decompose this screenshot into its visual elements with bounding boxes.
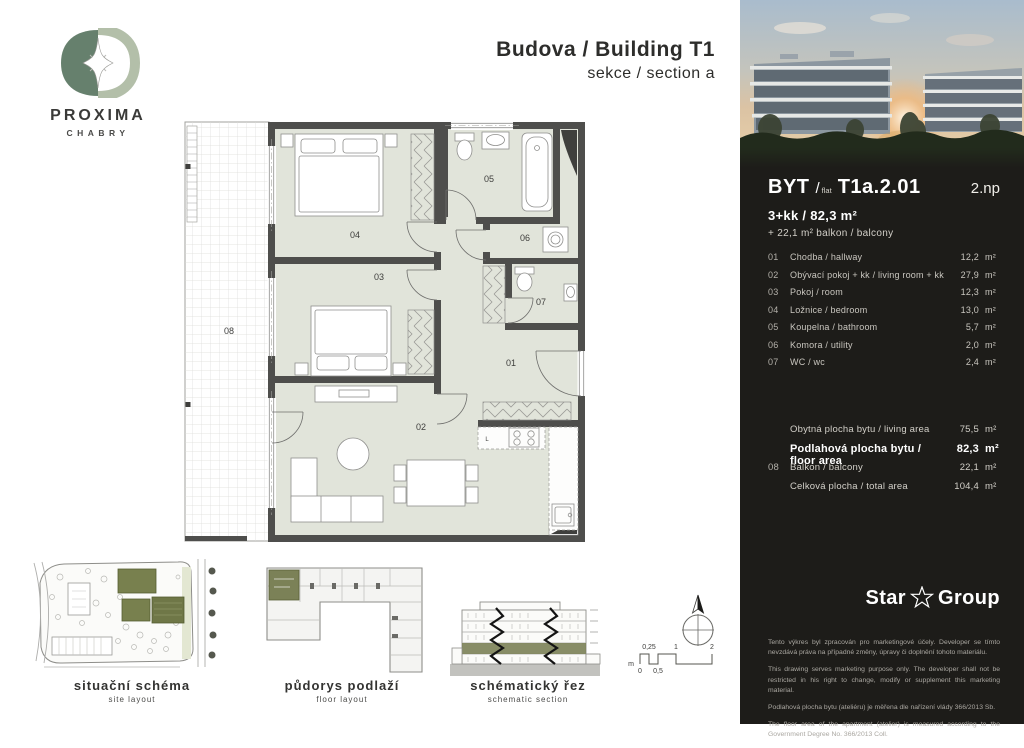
caption-floor-en: floor layout <box>262 695 422 704</box>
room-row-06-rlabel: Komora / utility <box>790 340 945 350</box>
room-row-06-runit: m² <box>985 340 1000 350</box>
room-label-08: 08 <box>224 326 234 336</box>
highlighted-floor <box>462 643 586 654</box>
room-row-04-rnum: 04 <box>768 305 790 315</box>
brand-word-star: Star <box>865 587 906 610</box>
site-layout-diagram <box>30 557 230 680</box>
caption-site-cs: situační schéma <box>32 678 232 693</box>
room-row-01-rlabel: Chodba / hallway <box>790 252 945 262</box>
flat-label: BYT <box>768 176 810 199</box>
total-row-0: Obytná plocha bytu / living area75,5m² <box>768 424 1000 443</box>
room-row-05-rnum: 05 <box>768 322 790 332</box>
scale-025: 0,25 <box>642 644 656 651</box>
room-row-07-rlabel: WC / wc <box>790 357 945 367</box>
room-label-05: 05 <box>484 174 494 184</box>
caption-floor-layout: půdorys podlaží floor layout <box>262 678 422 704</box>
building-rendering-photo <box>740 0 1024 168</box>
room-row-01: 01Chodba / hallway12,2m² <box>768 252 1000 270</box>
legal-paragraph-3: The floor area of the apartment (atelier… <box>768 720 1000 740</box>
total-row-3-runit: m² <box>985 481 1000 492</box>
room-row-01-runit: m² <box>985 252 1000 262</box>
right-building <box>923 68 1022 132</box>
flat-word: flat <box>822 186 832 195</box>
legal-paragraph-1: This drawing serves marketing purpose on… <box>768 665 1000 696</box>
total-row-3-rlabel: Celková plocha / total area <box>790 481 945 492</box>
flat-disposition: 3+kk / 82,3 m² <box>768 208 1000 223</box>
scale-unit: m <box>628 661 634 668</box>
logo-name: PROXIMA <box>40 107 156 125</box>
proxima-logo: PROXIMA CHABRY <box>40 28 156 138</box>
total-row-0-rlabel: Obytná plocha bytu / living area <box>790 424 945 435</box>
room-row-02-rarea: 27,9 <box>945 270 979 280</box>
flat-info-sidebar: BYT / flat T1a.2.01 2.np 3+kk / 82,3 m² … <box>740 0 1024 724</box>
flat-header: BYT / flat T1a.2.01 2.np 3+kk / 82,3 m² … <box>768 176 1000 239</box>
room-row-07-rnum: 07 <box>768 357 790 367</box>
total-row-1-rarea: 82,3 <box>945 443 979 455</box>
room-row-02-runit: m² <box>985 270 1000 280</box>
room-row-05-rarea: 5,7 <box>945 322 979 332</box>
section-subtitle: sekce / section a <box>496 65 715 83</box>
room-row-03-rnum: 03 <box>768 287 790 297</box>
caption-section-en: schematic section <box>448 695 608 704</box>
room-row-05: 05Koupelna / bathroom5,7m² <box>768 322 1000 340</box>
total-row-2-rlabel: Balkon / balcony <box>790 462 945 473</box>
scale-0: 0 <box>638 668 642 674</box>
proxima-emblem-icon <box>55 28 141 98</box>
room-row-01-rnum: 01 <box>768 252 790 262</box>
room-row-06-rnum: 06 <box>768 340 790 350</box>
building-title: Budova / Building T1 <box>496 38 715 62</box>
total-row-0-runit: m² <box>985 424 1000 435</box>
scale-bar: 0,25 1 2 0 0,5 m <box>628 638 720 679</box>
legal-paragraph-2: Podlahová plocha bytu (ateliéru) je měře… <box>768 703 1000 713</box>
scale-05: 0,5 <box>653 668 663 674</box>
room-row-01-rarea: 12,2 <box>945 252 979 262</box>
room-label-04: 04 <box>350 230 360 240</box>
flat-code: T1a.2.01 <box>838 176 921 199</box>
star-group-logo: Star Group <box>865 586 1000 610</box>
room-row-04: 04Ložnice / bedroom13,0m² <box>768 305 1000 323</box>
room-row-03-rlabel: Pokoj / room <box>790 287 945 297</box>
room-row-04-rlabel: Ložnice / bedroom <box>790 305 945 315</box>
room-row-02-rnum: 02 <box>768 270 790 280</box>
room-label-01: 01 <box>506 358 516 368</box>
room-row-03-runit: m² <box>985 287 1000 297</box>
room-row-03-rarea: 12,3 <box>945 287 979 297</box>
caption-section: schématický řez schematic section <box>448 678 608 704</box>
scale-1: 1 <box>674 644 678 651</box>
room-row-03: 03Pokoj / room12,3m² <box>768 287 1000 305</box>
room-row-06: 06Komora / utility2,0m² <box>768 340 1000 358</box>
room-row-02-rlabel: Obývací pokoj + kk / living room + kk <box>790 270 945 280</box>
floor-layout-diagram <box>262 560 427 683</box>
room-row-05-runit: m² <box>985 322 1000 332</box>
star-icon <box>910 586 934 610</box>
room-row-04-runit: m² <box>985 305 1000 315</box>
room-label-07: 07 <box>536 297 546 307</box>
room-area-table: 01Chodba / hallway12,2m²02Obývací pokoj … <box>768 252 1000 375</box>
highlighted-flat <box>269 570 299 600</box>
legal-disclaimer: Tento výkres byl zpracován pro marketing… <box>768 638 1000 748</box>
total-row-1-runit: m² <box>985 443 1000 455</box>
total-row-3: Celková plocha / total area104,4m² <box>768 481 1000 500</box>
legal-paragraph-0: Tento výkres byl zpracován pro marketing… <box>768 638 1000 658</box>
caption-site-layout: situační schéma site layout <box>32 678 232 704</box>
balcony-note: + 22,1 m² balkon / balcony <box>768 228 1000 239</box>
room-label-03: 03 <box>374 272 384 282</box>
floor-plan-drawing: 08 04 03 05 06 07 01 02 L <box>183 118 593 548</box>
caption-floor-cs: půdorys podlaží <box>262 678 422 693</box>
sheet-title: Budova / Building T1 sekce / section a <box>496 38 715 83</box>
room-label-06: 06 <box>520 233 530 243</box>
room-row-07: 07WC / wc2,4m² <box>768 357 1000 375</box>
total-row-2-rarea: 22,1 <box>945 462 979 473</box>
floor-number: 2.np <box>971 180 1000 197</box>
caption-section-cs: schématický řez <box>448 678 608 693</box>
total-row-2: 08Balkon / balcony22,1m² <box>768 462 1000 481</box>
room-row-02: 02Obývací pokoj + kk / living room + kk2… <box>768 270 1000 288</box>
total-row-1: Podlahová plocha bytu / floor area82,3m² <box>768 443 1000 462</box>
room-row-05-rlabel: Koupelna / bathroom <box>790 322 945 332</box>
brand-word-group: Group <box>938 587 1000 610</box>
total-row-3-rarea: 104,4 <box>945 481 979 492</box>
caption-site-en: site layout <box>32 695 232 704</box>
flat-slash: / <box>816 180 820 197</box>
room-label-02: 02 <box>416 422 426 432</box>
area-totals-table: Obytná plocha bytu / living area75,5m²Po… <box>768 424 1000 500</box>
total-row-2-rnum: 08 <box>768 462 790 473</box>
floor-plan: 08 04 03 05 06 07 01 02 L <box>183 118 593 548</box>
schematic-section-diagram <box>450 596 605 685</box>
room-row-07-runit: m² <box>985 357 1000 367</box>
scale-2: 2 <box>710 644 714 651</box>
total-row-0-rarea: 75,5 <box>945 424 979 435</box>
room-row-06-rarea: 2,0 <box>945 340 979 350</box>
logo-city: CHABRY <box>40 128 156 138</box>
document-page: PROXIMA CHABRY Budova / Building T1 sekc… <box>0 0 740 724</box>
room-row-04-rarea: 13,0 <box>945 305 979 315</box>
total-row-2-runit: m² <box>985 462 1000 473</box>
room-row-07-rarea: 2,4 <box>945 357 979 367</box>
